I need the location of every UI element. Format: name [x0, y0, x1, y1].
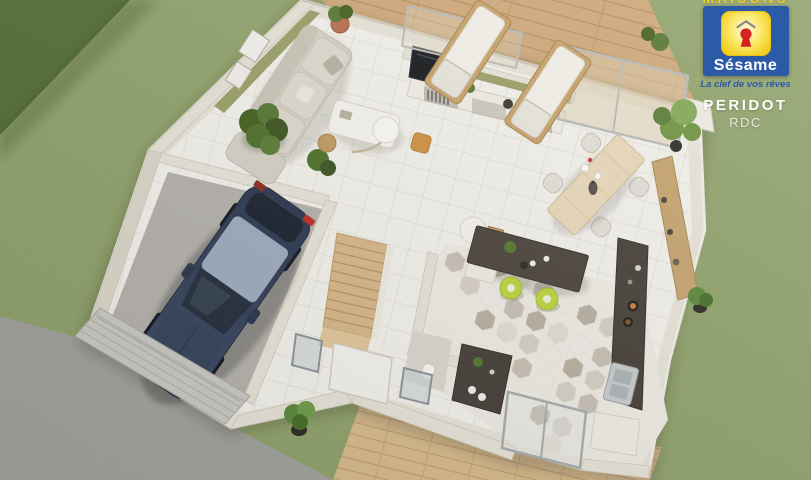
brand-top-clipped-text: MAISONS: [680, 0, 811, 6]
turntable: [503, 99, 513, 109]
keyhole-house-icon: [721, 11, 771, 56]
brand-watermark: MAISONS Sésame La clef de vos rêves PERI…: [680, 0, 811, 130]
brand-logo-card: Sésame: [703, 6, 789, 76]
plan-name: PERIDOT: [680, 97, 811, 114]
floorplan-3d-render: MAISONS Sésame La clef de vos rêves PERI…: [0, 0, 811, 480]
brand-name: Sésame: [714, 57, 778, 75]
wood-stool: [318, 134, 336, 152]
pouf: [410, 132, 432, 154]
brand-tagline: La clef de vos rêves: [680, 79, 811, 90]
floor-level-label: RDC: [680, 115, 811, 130]
